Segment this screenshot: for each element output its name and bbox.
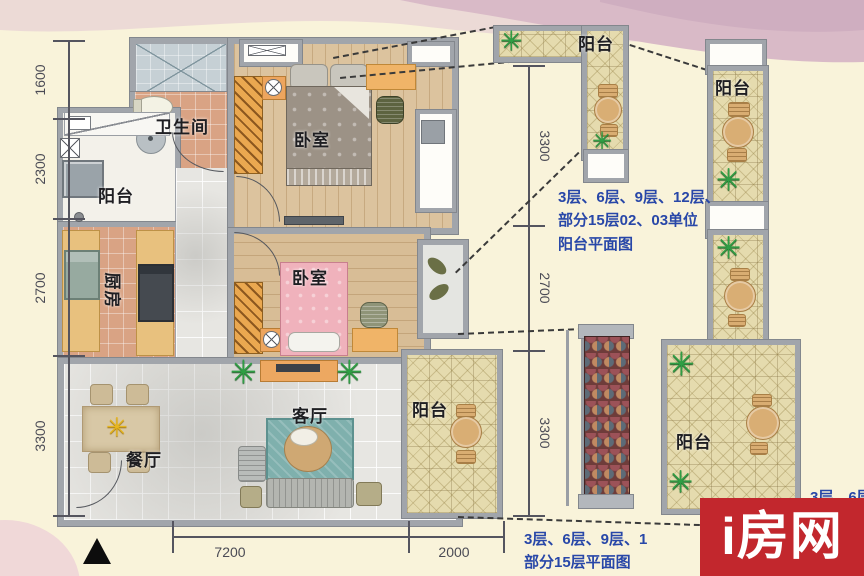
bedroom1-chair [376,96,404,124]
railing-cap-bottom [578,494,634,509]
balcony-stool [728,314,746,327]
background-corner [0,520,80,576]
balcony-stool [456,450,476,464]
dim-tick [53,515,85,517]
bathroom-label: 卫生间 [155,113,209,138]
dim-tick [53,118,85,120]
dim-tick [513,515,545,517]
service-balcony-label: 阳台 [98,182,134,207]
plant-icon: ✳ [716,166,741,196]
plan-note: 3层、6层、9层、1 部分15层平面图 [524,528,647,575]
bay-cushion [421,120,445,144]
balcony-table [450,416,482,448]
watermark-text: i房网 [721,511,842,563]
right-strip-label: 阳台 [715,74,751,99]
dim-left-2300: 2300 [32,139,48,199]
bedside-fan-icon [265,79,282,96]
bedroom1-desk [366,64,416,90]
balcony-note-line3: 阳台平面图 [558,233,720,256]
window-recess [408,42,454,66]
floor-drain [74,212,84,222]
bedroom2-label: 卧室 [292,264,328,289]
balcony-note: 3层、6层、9层、12层、 部分15层02、03单位 阳台平面图 [558,186,720,256]
balcony-note-line2: 部分15层02、03单位 [558,209,720,232]
living-label: 客厅 [292,402,328,427]
plant-icon: ✳ [668,468,693,498]
dining-chair [126,384,149,405]
washer-valve-icon [60,138,80,158]
bed2-pillow [288,332,340,352]
dim-center-3300a: 3300 [537,116,553,176]
l-balcony-label: 阳台 [578,30,614,55]
dim-tick [172,521,174,553]
bedroom1-bench [284,216,344,225]
plant-icon: ✳ [336,356,363,388]
dim-center-3300b: 3300 [537,403,553,463]
plant-icon: ✳ [230,356,257,388]
wide-balcony-label: 阳台 [676,428,712,453]
bed1-foot-band [286,168,372,186]
vent-shaft-icon [248,45,286,56]
dim-bottom-2000: 2000 [424,544,484,560]
dim-center-2700: 2700 [537,258,553,318]
tv [276,364,320,372]
coffee-table-tray [290,428,318,446]
side-table-left [240,486,262,508]
flower-icon: ✳ [106,414,128,440]
sofa [266,478,354,508]
bed1-fold-corner [334,87,369,119]
plan-note-line1: 3层、6层、9层、1 [524,528,647,551]
plant-icon: ✳ [668,348,695,380]
bedroom2-wardrobe [234,282,263,354]
balcony-table [724,280,756,312]
side-table-right [356,482,382,506]
washbasin-drain [148,136,153,141]
dim-tick [53,218,85,220]
balcony-stool [727,148,747,162]
l-balcony-opening [584,150,628,182]
leader-dash [458,516,700,526]
bedroom2-desk [352,328,398,352]
floorplan-canvas: 阳台 卫生间 厨房 卧室 卧室 ✳ ✳ 客厅 ✳ 餐厅 阳 [0,0,864,576]
balcony-table [722,116,754,148]
balcony-note-line1: 3层、6层、9层、12层、 [558,186,720,209]
plant-icon: ✳ [716,234,741,264]
bedroom1-label: 卧室 [294,126,330,151]
railing-brick-panel [584,336,630,496]
dining-chair [90,384,113,405]
bedroom2-chair [360,302,388,328]
dim-tick [503,521,505,553]
dim-line-left [68,40,70,515]
bedroom1-wardrobe [234,76,263,174]
balcony-table [746,406,780,440]
bedside-fan2-icon [263,331,280,348]
dim-tick [513,225,545,227]
dim-line-center [528,65,530,515]
stove [138,264,174,322]
armchair [238,446,266,482]
dim-left-1600: 1600 [32,50,48,110]
dim-tick [513,350,545,352]
railing-rail [566,330,584,506]
dim-tick [53,40,85,42]
plan-note-line2: 部分15层平面图 [524,551,647,574]
dim-left-2700: 2700 [32,258,48,318]
watermark-badge: i房网 [700,498,864,576]
main-balcony-label: 阳台 [412,396,448,421]
corridor-floor [176,168,232,364]
dim-bottom-7200: 7200 [200,544,260,560]
balcony-stool [750,442,768,455]
north-arrow-icon [83,538,111,564]
dim-tick [53,355,85,357]
kitchen-label: 厨房 [102,273,127,309]
dim-line-bottom [172,536,503,538]
plant-icon: ✳ [500,28,523,55]
balcony-stool [728,102,750,117]
dim-tick [513,65,545,67]
dim-left-3300: 3300 [32,406,48,466]
dining-label: 餐厅 [126,446,162,471]
dim-tick [408,521,410,553]
balcony-table [594,96,622,124]
